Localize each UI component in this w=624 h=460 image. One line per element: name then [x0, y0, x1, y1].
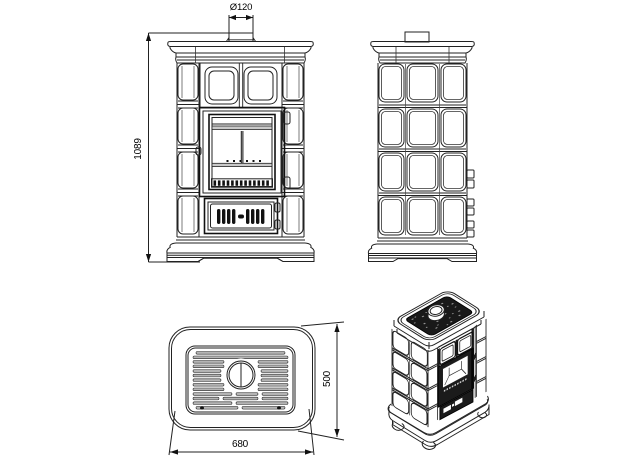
svg-text:500: 500: [322, 370, 333, 387]
svg-text:680: 680: [232, 439, 249, 450]
svg-text:1089: 1089: [133, 138, 144, 160]
svg-text:Ø120: Ø120: [230, 2, 252, 13]
